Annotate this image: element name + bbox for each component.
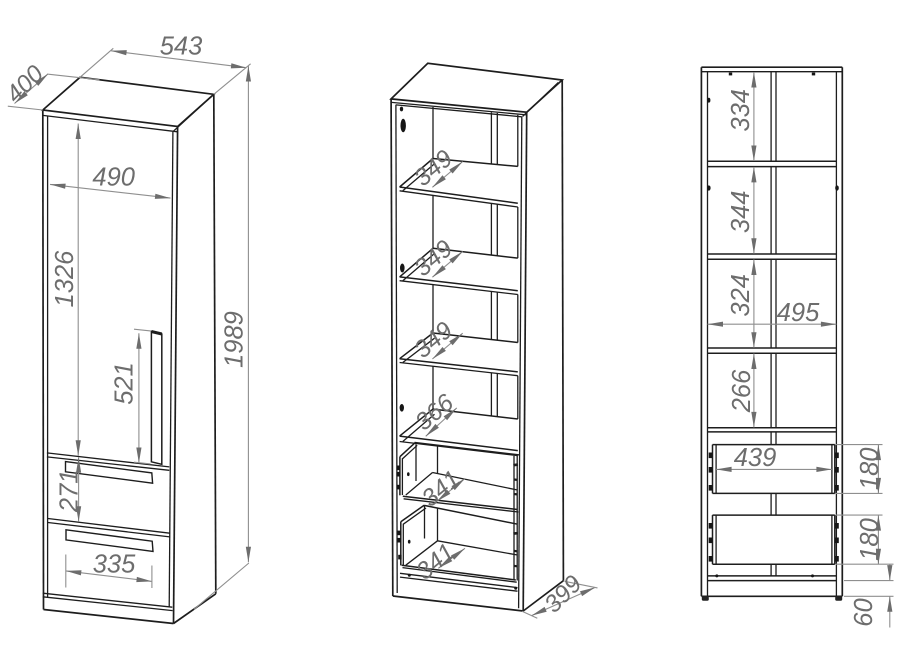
- svg-text:271: 271: [55, 470, 83, 514]
- svg-text:324: 324: [727, 274, 755, 317]
- svg-text:180: 180: [856, 518, 884, 561]
- svg-text:1326: 1326: [51, 250, 79, 308]
- svg-text:335: 335: [93, 551, 136, 579]
- svg-text:334: 334: [727, 89, 755, 132]
- svg-text:521: 521: [110, 362, 138, 405]
- svg-text:344: 344: [727, 191, 755, 234]
- svg-text:266: 266: [728, 369, 756, 413]
- svg-text:349: 349: [409, 235, 458, 282]
- svg-text:439: 439: [734, 444, 777, 472]
- svg-text:400: 400: [1, 60, 49, 108]
- svg-text:543: 543: [160, 33, 203, 61]
- svg-text:349: 349: [409, 317, 458, 364]
- svg-text:399: 399: [539, 570, 587, 618]
- svg-text:349: 349: [409, 145, 458, 192]
- svg-text:490: 490: [92, 164, 135, 192]
- svg-text:180: 180: [856, 448, 884, 491]
- svg-text:495: 495: [777, 299, 820, 327]
- svg-text:1989: 1989: [221, 311, 249, 368]
- svg-text:341: 341: [411, 539, 460, 586]
- svg-text:60: 60: [850, 598, 878, 626]
